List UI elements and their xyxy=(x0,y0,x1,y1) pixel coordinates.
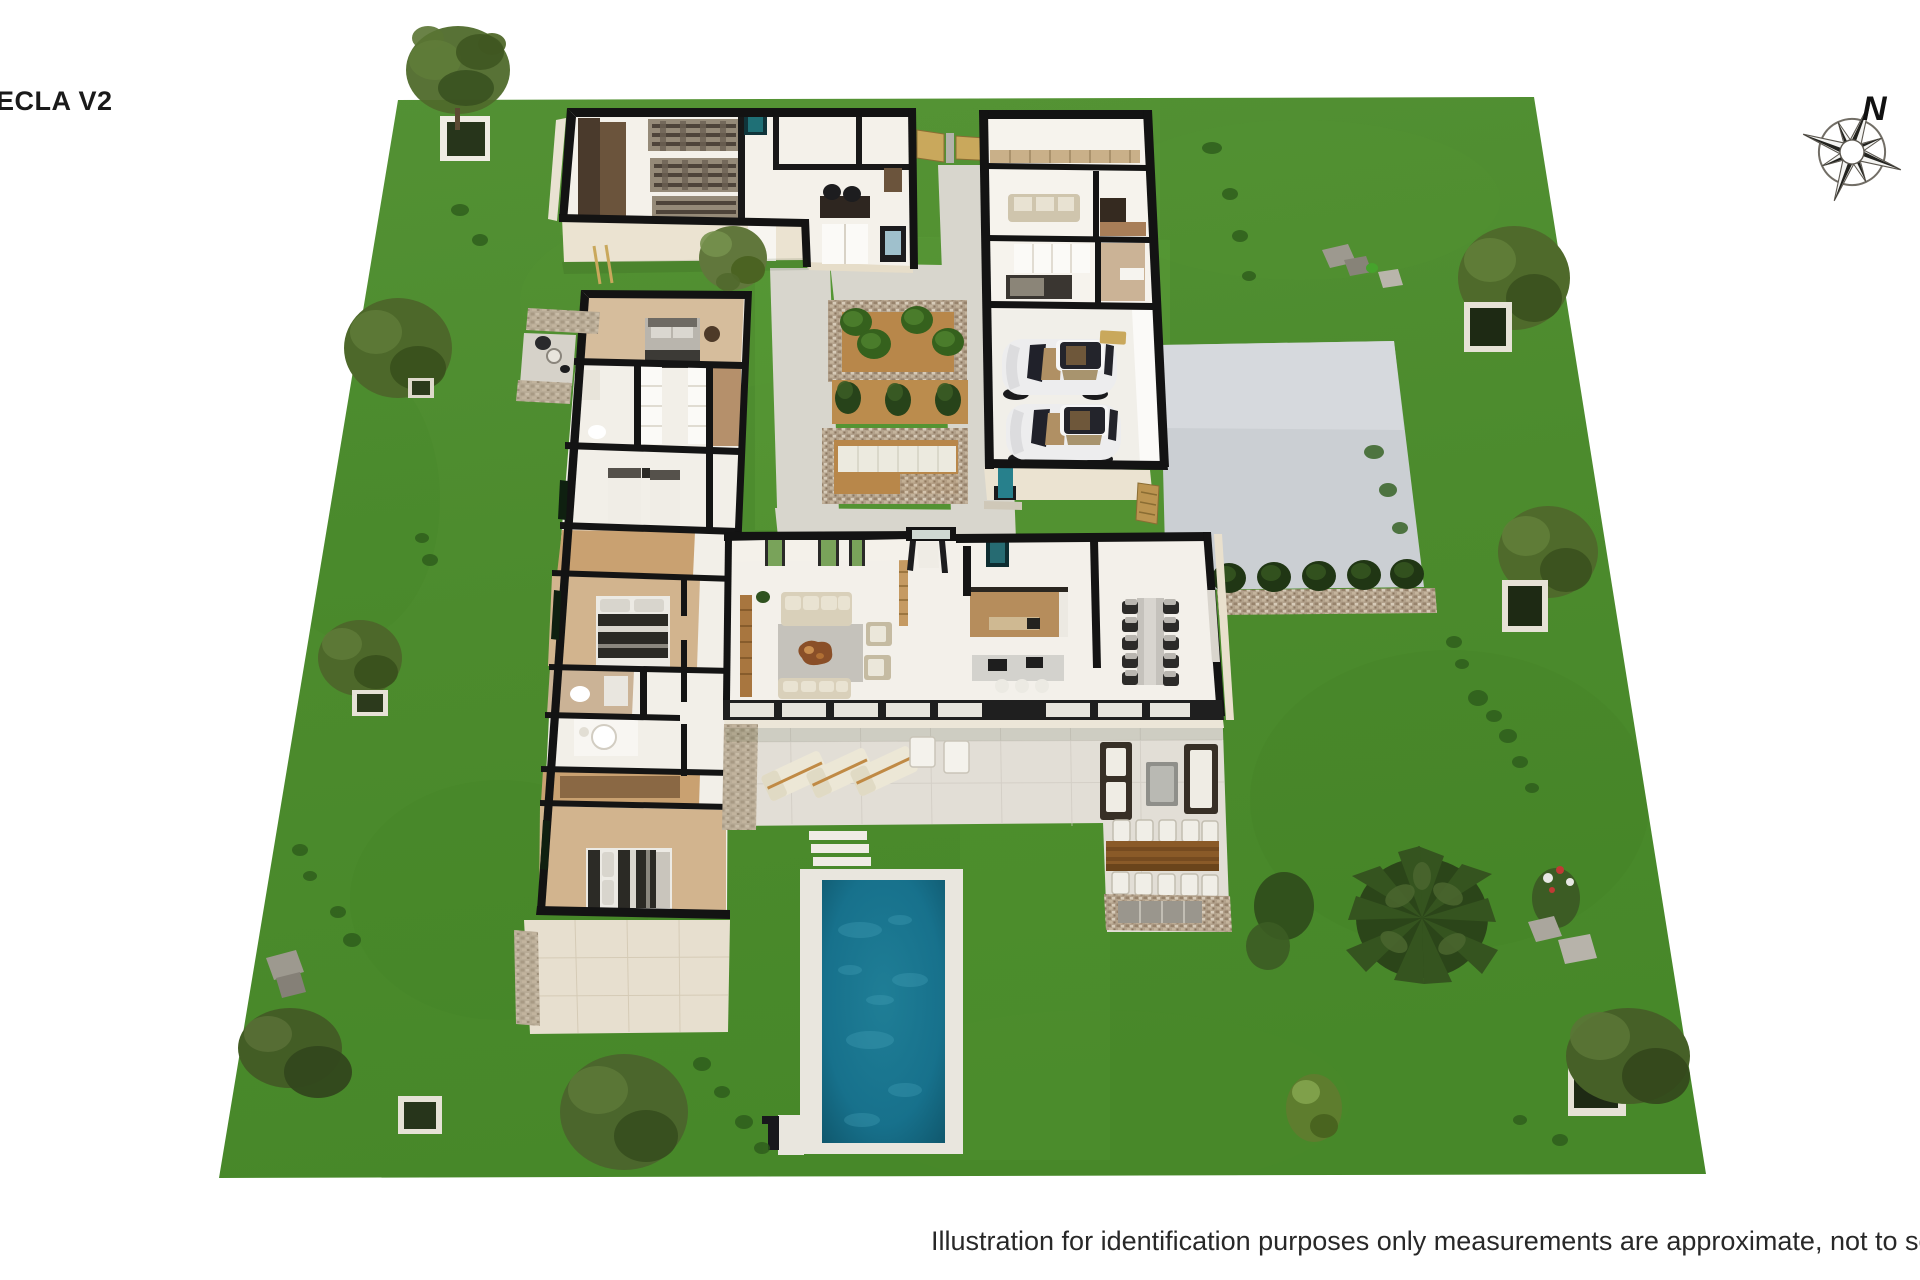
svg-text:ECLA V2: ECLA V2 xyxy=(0,86,113,116)
svg-text:N: N xyxy=(1862,90,1888,128)
svg-text:Illustration for identificatio: Illustration for identification purposes… xyxy=(931,1226,1920,1256)
